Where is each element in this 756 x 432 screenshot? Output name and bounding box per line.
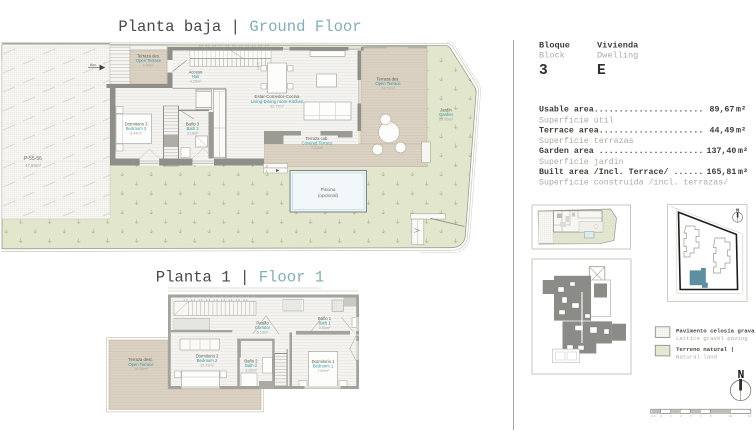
svg-text:Dwelling: Dwelling bbox=[597, 51, 638, 61]
svg-text:Superficie terrazas: Superficie terrazas bbox=[539, 136, 634, 146]
svg-text:12.72m²: 12.72m² bbox=[200, 364, 215, 368]
svg-text:137,40 m²: 137,40 m² bbox=[707, 147, 749, 156]
svg-text:Open Terrace: Open Terrace bbox=[375, 81, 401, 86]
svg-text:Built area /Incl. Terrace/ ...: Built area /Incl. Terrace/ ...... bbox=[539, 167, 703, 177]
svg-text:N: N bbox=[736, 208, 739, 214]
svg-text:Superficie construida /incl. t: Superficie construida /incl. terrazas/ bbox=[539, 178, 728, 188]
svg-text:Living-Dining room-Kitchen: Living-Dining room-Kitchen bbox=[251, 99, 304, 104]
svg-text:(opcional): (opcional) bbox=[318, 193, 339, 198]
svg-text:E: E bbox=[597, 63, 606, 79]
svg-text:15: 15 bbox=[748, 415, 752, 418]
svg-text:3.18m²: 3.18m² bbox=[187, 132, 200, 136]
svg-text:32.77m²: 32.77m² bbox=[270, 105, 285, 109]
svg-text:Hall: Hall bbox=[192, 74, 199, 79]
svg-text:Superficie útil: Superficie útil bbox=[539, 115, 614, 125]
svg-text:Superficie jardín: Superficie jardín bbox=[539, 157, 624, 167]
svg-text:3.53m²: 3.53m² bbox=[319, 326, 332, 330]
svg-text:24.77m²: 24.77m² bbox=[381, 87, 396, 91]
svg-text:3.34m²: 3.34m² bbox=[143, 63, 156, 67]
svg-text:Bedroom 1: Bedroom 1 bbox=[313, 364, 334, 369]
svg-text:Planta baja | Ground Floor: Planta baja | Ground Floor bbox=[118, 18, 361, 36]
svg-text:Pavimento celosía grava: Pavimento celosía grava bbox=[676, 327, 755, 334]
svg-text:10: 10 bbox=[729, 415, 733, 418]
svg-text:Bath 3: Bath 3 bbox=[186, 126, 199, 131]
svg-text:Bedroom 3: Bedroom 3 bbox=[126, 126, 147, 131]
svg-text:4.25m²: 4.25m² bbox=[190, 80, 203, 84]
svg-text:Covered Terrace: Covered Terrace bbox=[302, 141, 334, 146]
svg-text:9.44m²: 9.44m² bbox=[130, 132, 143, 136]
svg-text:65.55m²: 65.55m² bbox=[439, 118, 454, 122]
svg-text:Natural land: Natural land bbox=[676, 354, 717, 361]
svg-text:Vivienda: Vivienda bbox=[597, 41, 638, 51]
svg-text:04 05 06 07 08 09 10 11 12 13: 04 05 06 07 08 09 10 11 12 13 14 bbox=[199, 44, 270, 48]
svg-text:Open Terrace: Open Terrace bbox=[136, 58, 162, 63]
svg-text:44,49 m²: 44,49 m² bbox=[709, 126, 746, 135]
svg-text:01 02 03 04 05 06 07 08 09 10: 01 02 03 04 05 06 07 08 09 10 11 bbox=[186, 294, 257, 298]
svg-text:Bath 1: Bath 1 bbox=[318, 321, 331, 326]
svg-text:Bedroom 2: Bedroom 2 bbox=[197, 358, 218, 363]
svg-text:3.35m²: 3.35m² bbox=[245, 369, 258, 373]
svg-text:89,67 m²: 89,67 m² bbox=[709, 106, 746, 115]
svg-text:12,16: 12,16 bbox=[256, 62, 260, 70]
svg-text:Bath 2: Bath 2 bbox=[245, 363, 258, 368]
svg-text:3: 3 bbox=[539, 63, 548, 79]
svg-text:Block: Block bbox=[539, 51, 565, 61]
svg-text:Acc.: Acc. bbox=[90, 63, 97, 67]
svg-text:Garden area ..................: Garden area ..................... bbox=[539, 146, 703, 156]
svg-text:7.50m²: 7.50m² bbox=[317, 369, 330, 373]
svg-text:165,81 m²: 165,81 m² bbox=[707, 168, 749, 177]
svg-text:Terreno natural |: Terreno natural | bbox=[676, 346, 734, 353]
svg-text:Terrace area..................: Terrace area..................... bbox=[539, 126, 703, 135]
svg-text:Planta 1 | Floor 1: Planta 1 | Floor 1 bbox=[156, 269, 324, 287]
svg-text:47.85m²: 47.85m² bbox=[25, 163, 42, 168]
svg-text:5.18m²: 5.18m² bbox=[257, 331, 270, 335]
svg-text:Lattice gravel paving: Lattice gravel paving bbox=[676, 335, 748, 342]
svg-text:2: 2 bbox=[266, 165, 268, 169]
svg-text:Bloque: Bloque bbox=[539, 41, 570, 51]
svg-text:Open Terrace: Open Terrace bbox=[128, 362, 154, 367]
svg-text:15.55m²: 15.55m² bbox=[134, 367, 149, 371]
svg-text:Piscina: Piscina bbox=[321, 187, 336, 192]
svg-text:P-55-56: P-55-56 bbox=[24, 156, 42, 162]
svg-text:N: N bbox=[737, 369, 744, 382]
svg-text:0.5: 0.5 bbox=[651, 415, 656, 418]
svg-text:1: 1 bbox=[266, 169, 268, 173]
svg-text:Garden: Garden bbox=[439, 112, 454, 117]
svg-text:Usable area...................: Usable area...................... bbox=[539, 105, 703, 115]
svg-text:17 16 15 14 13 12 11 10 09: 17 16 15 14 13 12 11 10 09 bbox=[183, 298, 248, 302]
svg-text:7.32m²: 7.32m² bbox=[311, 146, 324, 150]
